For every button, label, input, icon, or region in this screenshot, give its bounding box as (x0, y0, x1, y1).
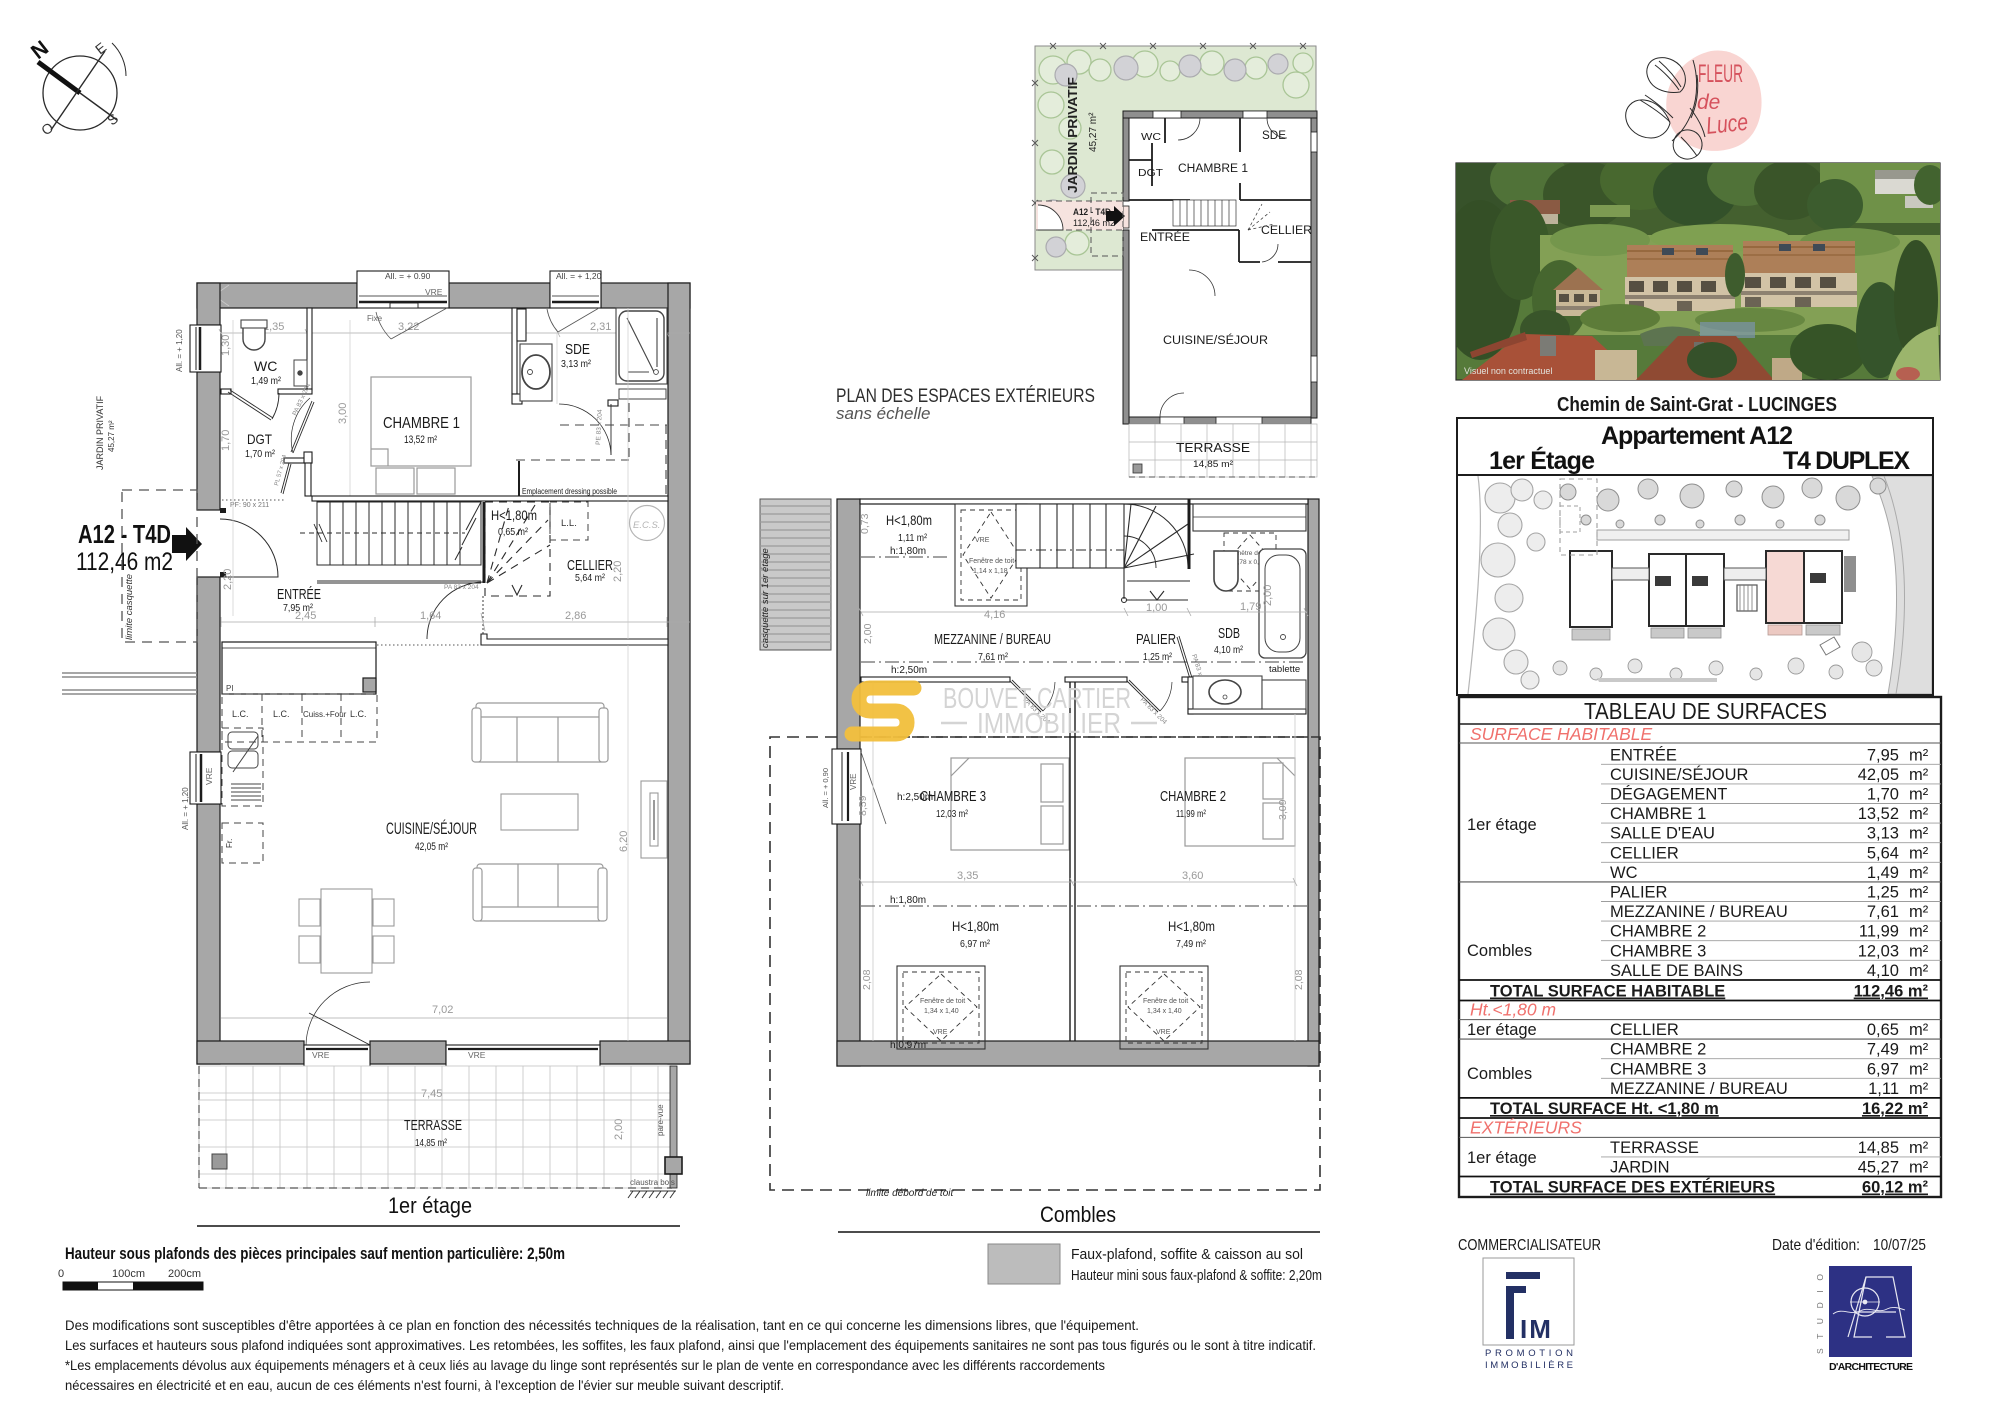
svg-text:1er étage: 1er étage (1467, 816, 1537, 834)
svg-text:42,05 m²: 42,05 m² (415, 841, 448, 853)
svg-text:1er étage: 1er étage (1467, 1149, 1537, 1167)
svg-text:7,45: 7,45 (421, 1088, 442, 1100)
svg-text:ENTRÉE: ENTRÉE (1140, 231, 1190, 244)
svg-text:Visuel non contractuel: Visuel non contractuel (1464, 366, 1552, 376)
svg-text:1,79: 1,79 (1240, 601, 1261, 613)
svg-text:0: 0 (58, 1268, 64, 1280)
svg-text:m²: m² (1909, 746, 1929, 764)
svg-text:All. = + 0,90: All. = + 0,90 (821, 768, 830, 808)
svg-text:7,95: 7,95 (1867, 746, 1899, 764)
svg-text:2,08: 2,08 (1293, 969, 1305, 990)
svg-text:All. = + 1,20: All. = + 1,20 (175, 329, 184, 372)
svg-text:DÉGAGEMENT: DÉGAGEMENT (1610, 785, 1727, 804)
svg-text:Fixe: Fixe (367, 314, 383, 323)
svg-text:DGT: DGT (247, 431, 272, 447)
svg-text:0,65: 0,65 (1867, 1021, 1899, 1039)
svg-text:nécessaires en électricité et: nécessaires en électricité et en eau, au… (65, 1378, 784, 1393)
svg-text:casquette sur 1er étage: casquette sur 1er étage (760, 548, 771, 648)
svg-text:1er étage: 1er étage (1467, 1021, 1537, 1039)
svg-text:m²: m² (1909, 805, 1929, 823)
svg-text:14,85 m²: 14,85 m² (1193, 459, 1233, 470)
svg-text:12,03: 12,03 (1858, 942, 1899, 960)
svg-text:Des modifications sont suscept: Des modifications sont susceptibles d'êt… (65, 1318, 1139, 1333)
svg-text:Chemin de Saint-Grat - LUCINGE: Chemin de Saint-Grat - LUCINGES (1557, 394, 1837, 416)
svg-text:3,13 m²: 3,13 m² (561, 358, 591, 370)
svg-text:TOTAL SURFACE HABITABLE: TOTAL SURFACE HABITABLE (1490, 983, 1725, 1001)
svg-text:Hauteur sous plafonds des pièc: Hauteur sous plafonds des pièces princip… (65, 1245, 565, 1263)
svg-text:Appartement A12: Appartement A12 (1601, 422, 1793, 450)
svg-text:Luce: Luce (1705, 109, 1750, 140)
svg-text:de: de (1697, 91, 1720, 114)
svg-text:42,05: 42,05 (1858, 766, 1899, 784)
svg-text:112,46 m²: 112,46 m² (1854, 983, 1929, 1001)
svg-text:m²: m² (1909, 1159, 1929, 1177)
svg-text:Ht.<1,80 m: Ht.<1,80 m (1470, 1000, 1556, 1020)
svg-text:L.C.: L.C. (350, 709, 367, 719)
svg-text:ENTRÉE: ENTRÉE (277, 586, 321, 603)
svg-text:2,20: 2,20 (612, 561, 624, 582)
svg-text:H<1,80m: H<1,80m (1168, 918, 1215, 934)
svg-text:L.C.: L.C. (232, 709, 249, 719)
svg-text:m²: m² (1909, 1041, 1929, 1059)
svg-text:CUISINE/SÉJOUR: CUISINE/SÉJOUR (1163, 334, 1268, 347)
svg-text:1,49: 1,49 (1867, 864, 1899, 882)
svg-text:PI: PI (226, 684, 234, 693)
svg-text:CHAMBRE 1: CHAMBRE 1 (1610, 805, 1706, 823)
svg-text:5,64 m²: 5,64 m² (575, 572, 605, 584)
svg-text:2,86: 2,86 (565, 610, 586, 622)
svg-text:Combles: Combles (1467, 1065, 1532, 1083)
svg-text:VRE: VRE (1156, 1029, 1171, 1036)
svg-text:H<1,80m: H<1,80m (491, 507, 537, 523)
svg-text:JARDIN PRIVATIF: JARDIN PRIVATIF (1065, 77, 1080, 193)
svg-text:1er Étage: 1er Étage (1489, 446, 1595, 475)
svg-text:m²: m² (1909, 1021, 1929, 1039)
svg-text:Hauteur mini sous faux-plafond: Hauteur mini sous faux-plafond & soffite… (1071, 1267, 1322, 1284)
svg-text:45,27: 45,27 (1858, 1159, 1899, 1177)
svg-text:All. = + 1,20: All. = + 1,20 (181, 787, 190, 830)
svg-text:TERRASSE: TERRASSE (1176, 440, 1250, 455)
svg-text:Combles: Combles (1467, 942, 1532, 960)
svg-text:L.C.: L.C. (273, 709, 290, 719)
svg-text:H<1,80m: H<1,80m (952, 918, 999, 934)
svg-text:Fr.: Fr. (225, 839, 234, 848)
svg-text:1,34 x 1,40: 1,34 x 1,40 (1147, 1008, 1182, 1015)
svg-text:IM: IM (1520, 1314, 1553, 1344)
svg-text:CUISINE/SÉJOUR: CUISINE/SÉJOUR (1610, 765, 1749, 784)
svg-text:Fenêtre de toit: Fenêtre de toit (920, 998, 965, 1005)
svg-text:45,27 m²: 45,27 m² (1088, 112, 1099, 152)
svg-text:CELLIER: CELLIER (1610, 1021, 1679, 1039)
svg-text:limite casquette: limite casquette (124, 574, 135, 640)
svg-text:1,70 m²: 1,70 m² (245, 448, 275, 460)
svg-text:Fenêtre de toit: Fenêtre de toit (1143, 998, 1188, 1005)
svg-text:6,97: 6,97 (1867, 1060, 1899, 1078)
svg-text:112,46 m2: 112,46 m2 (76, 548, 173, 576)
svg-text:SDE: SDE (565, 341, 590, 358)
svg-text:PALIER: PALIER (1136, 631, 1176, 648)
svg-text:2,31: 2,31 (590, 321, 611, 333)
svg-text:Emplacement dressing possible: Emplacement dressing possible (522, 486, 617, 496)
svg-text:SALLE DE BAINS: SALLE DE BAINS (1610, 962, 1743, 980)
svg-text:2,45: 2,45 (295, 610, 316, 622)
svg-text:EXTÉRIEURS: EXTÉRIEURS (1470, 1118, 1582, 1138)
svg-text:2,20: 2,20 (222, 569, 234, 590)
svg-text:1,11: 1,11 (1868, 1080, 1899, 1098)
svg-text:All. = + 1,20: All. = + 1,20 (556, 271, 602, 281)
svg-text:7,61 m²: 7,61 m² (978, 651, 1008, 663)
svg-text:CHAMBRE 3: CHAMBRE 3 (1610, 942, 1706, 960)
svg-text:sans échelle: sans échelle (836, 404, 931, 423)
svg-text:m²: m² (1909, 1080, 1929, 1098)
svg-text:2,00: 2,00 (1262, 585, 1274, 606)
svg-text:200cm: 200cm (168, 1268, 201, 1280)
svg-text:SURFACE HABITABLE: SURFACE HABITABLE (1470, 724, 1652, 744)
svg-text:TOTAL SURFACE DES EXTÉRIEURS: TOTAL SURFACE DES EXTÉRIEURS (1490, 1178, 1775, 1197)
svg-text:VRE: VRE (849, 774, 858, 790)
svg-text:1,70: 1,70 (1867, 786, 1899, 804)
svg-text:TERRASSE: TERRASSE (404, 1117, 462, 1134)
svg-text:Fenêtre de toit: Fenêtre de toit (969, 558, 1014, 565)
svg-text:m²: m² (1909, 884, 1929, 902)
svg-text:CELLIER: CELLIER (1610, 844, 1679, 862)
svg-text:m²: m² (1909, 923, 1929, 941)
svg-text:1er étage: 1er étage (388, 1193, 472, 1218)
svg-text:h:2,50m: h:2,50m (891, 665, 927, 676)
svg-text:limite débord de toit: limite débord de toit (866, 1188, 954, 1199)
svg-text:TERRASSE: TERRASSE (1610, 1139, 1699, 1157)
svg-text:VRE: VRE (933, 1029, 948, 1036)
svg-text:ENTRÉE: ENTRÉE (1610, 745, 1677, 764)
svg-text:1,34 x 1,40: 1,34 x 1,40 (924, 1008, 959, 1015)
svg-text:PF: 90 x 211: PF: 90 x 211 (230, 502, 269, 509)
svg-text:tablette: tablette (1269, 664, 1300, 675)
svg-text:VRE: VRE (468, 1050, 486, 1060)
svg-text:14,85 m²: 14,85 m² (415, 1137, 447, 1149)
svg-text:VRE: VRE (425, 287, 443, 297)
svg-text:8,59: 8,59 (857, 795, 869, 816)
svg-text:E.C.S.: E.C.S. (633, 520, 660, 531)
svg-text:CHAMBRE 2: CHAMBRE 2 (1160, 788, 1226, 805)
svg-text:H<1,80m: H<1,80m (886, 512, 932, 528)
svg-text:*Les emplacements dévolus aux: *Les emplacements dévolus aux équipement… (65, 1358, 1105, 1373)
svg-text:JARDIN: JARDIN (1610, 1159, 1670, 1177)
svg-text:SDB: SDB (1218, 625, 1240, 642)
svg-text:CHAMBRE 3: CHAMBRE 3 (920, 788, 986, 805)
svg-text:3,35: 3,35 (957, 870, 978, 882)
svg-text:Cuiss.+Four: Cuiss.+Four (303, 710, 347, 719)
svg-text:1,25 m²: 1,25 m² (1143, 651, 1172, 663)
svg-text:2,00: 2,00 (613, 1119, 625, 1140)
svg-text:A12 - T4D: A12 - T4D (78, 519, 171, 549)
svg-text:4,10: 4,10 (1867, 962, 1899, 980)
svg-text:3,13: 3,13 (1867, 825, 1899, 843)
svg-text:D'ARCHITECTURE: D'ARCHITECTURE (1829, 1361, 1913, 1373)
svg-text:Combles: Combles (1040, 1202, 1116, 1227)
svg-text:m²: m² (1909, 962, 1929, 980)
svg-text:IMMOBILIER: IMMOBILIER (977, 708, 1121, 740)
svg-text:2,08: 2,08 (861, 969, 873, 990)
svg-text:3,09: 3,09 (1277, 799, 1289, 820)
svg-text:h:1,80m: h:1,80m (890, 546, 926, 557)
svg-text:JARDIN PRIVATIF: JARDIN PRIVATIF (95, 395, 105, 470)
svg-text:m²: m² (1909, 786, 1929, 804)
svg-text:T4 DUPLEX: T4 DUPLEX (1783, 447, 1910, 475)
svg-text:WC: WC (1141, 131, 1161, 143)
svg-text:7,49: 7,49 (1867, 1041, 1899, 1059)
svg-text:h:1,80m: h:1,80m (890, 895, 926, 906)
svg-text:100cm: 100cm (112, 1268, 145, 1280)
svg-text:CHAMBRE 1: CHAMBRE 1 (383, 415, 460, 432)
svg-text:L.L.: L.L. (561, 518, 577, 529)
svg-text:4,16: 4,16 (984, 609, 1005, 621)
svg-text:WC: WC (1610, 864, 1638, 882)
svg-text:3,00: 3,00 (337, 403, 349, 424)
svg-text:WC: WC (254, 358, 277, 374)
svg-text:1,70: 1,70 (220, 430, 232, 451)
svg-text:DGT: DGT (1138, 167, 1164, 179)
svg-text:PALIER: PALIER (1610, 884, 1668, 902)
svg-text:m²: m² (1909, 766, 1929, 784)
svg-text:45,27 m²: 45,27 m² (107, 420, 116, 452)
svg-text:Faux-plafond, soffite & caisso: Faux-plafond, soffite & caisson au sol (1071, 1246, 1303, 1263)
svg-text:60,12 m²: 60,12 m² (1862, 1179, 1929, 1197)
svg-text:Date d'édition:: Date d'édition: (1772, 1237, 1860, 1254)
svg-text:Les surfaces et hauteurs sous: Les surfaces et hauteurs sous plafond in… (65, 1338, 1316, 1353)
svg-text:h:0,97m: h:0,97m (890, 1040, 926, 1051)
svg-text:m²: m² (1909, 942, 1929, 960)
svg-text:TOTAL SURFACE Ht. <1,80 m: TOTAL SURFACE Ht. <1,80 m (1490, 1100, 1719, 1118)
svg-text:m²: m² (1909, 903, 1929, 921)
svg-text:0,65 m²: 0,65 m² (498, 526, 528, 538)
svg-text:m²: m² (1909, 1060, 1929, 1078)
svg-text:13,52 m²: 13,52 m² (404, 434, 437, 446)
svg-text:0,73: 0,73 (859, 513, 871, 534)
svg-text:PROMOTION: PROMOTION (1485, 1348, 1573, 1359)
svg-text:CHAMBRE 3: CHAMBRE 3 (1610, 1060, 1706, 1078)
svg-text:1,64: 1,64 (420, 610, 441, 622)
svg-text:VRE: VRE (975, 537, 990, 544)
svg-text:FLEUR: FLEUR (1698, 60, 1743, 88)
svg-text:PA 83 x 204: PA 83 x 204 (444, 584, 479, 591)
svg-text:5,64: 5,64 (1867, 844, 1899, 862)
svg-text:14,85: 14,85 (1858, 1139, 1899, 1157)
svg-text:m²: m² (1909, 825, 1929, 843)
svg-text:MEZZANINE / BUREAU: MEZZANINE / BUREAU (1610, 1080, 1788, 1098)
svg-text:A12 - T4D: A12 - T4D (1073, 207, 1111, 218)
svg-text:CHAMBRE 2: CHAMBRE 2 (1610, 1041, 1706, 1059)
svg-text:MEZZANINE / BUREAU: MEZZANINE / BUREAU (934, 631, 1051, 648)
svg-text:1,00: 1,00 (1146, 602, 1167, 614)
svg-text:6,97 m²: 6,97 m² (960, 938, 990, 950)
svg-text:CHAMBRE 2: CHAMBRE 2 (1610, 923, 1706, 941)
svg-text:m²: m² (1909, 1139, 1929, 1157)
svg-text:claustra bois: claustra bois (630, 1178, 675, 1187)
svg-text:7,02: 7,02 (432, 1004, 453, 1016)
svg-text:TABLEAU DE SURFACES: TABLEAU DE SURFACES (1584, 698, 1827, 724)
svg-text:SDE: SDE (1262, 130, 1286, 142)
svg-text:COMMERCIALISATEUR: COMMERCIALISATEUR (1458, 1237, 1601, 1254)
svg-text:1,11 m²: 1,11 m² (898, 532, 927, 544)
svg-text:4,10 m²: 4,10 m² (1214, 644, 1243, 656)
svg-text:3,60: 3,60 (1182, 870, 1203, 882)
svg-text:10/07/25: 10/07/25 (1873, 1237, 1926, 1254)
svg-text:MEZZANINE / BUREAU: MEZZANINE / BUREAU (1610, 903, 1788, 921)
svg-text:All. = + 0.90: All. = + 0.90 (385, 271, 431, 281)
svg-text:1,30: 1,30 (220, 335, 232, 356)
svg-text:16,22 m²: 16,22 m² (1862, 1100, 1929, 1118)
svg-text:pare-vue: pare-vue (656, 1104, 665, 1136)
svg-text:m²: m² (1909, 844, 1929, 862)
svg-text:12,03 m²: 12,03 m² (936, 808, 968, 820)
svg-text:3,22: 3,22 (398, 321, 419, 333)
svg-text:7,49 m²: 7,49 m² (1176, 938, 1206, 950)
svg-text:CELLIER: CELLIER (1261, 225, 1312, 237)
svg-text:CUISINE/SÉJOUR: CUISINE/SÉJOUR (386, 819, 477, 838)
svg-text:2,00: 2,00 (862, 623, 874, 644)
svg-text:m²: m² (1909, 864, 1929, 882)
svg-text:11,99: 11,99 (1859, 923, 1899, 941)
svg-text:VRE: VRE (312, 1050, 330, 1060)
svg-text:1,25: 1,25 (1867, 884, 1899, 902)
svg-text:7,61: 7,61 (1867, 903, 1899, 921)
svg-text:VRE: VRE (204, 767, 214, 785)
svg-text:13,52: 13,52 (1858, 805, 1899, 823)
svg-text:1,14 x 1,18: 1,14 x 1,18 (973, 568, 1008, 575)
svg-text:11,99 m²: 11,99 m² (1176, 808, 1206, 820)
svg-text:SALLE D'EAU: SALLE D'EAU (1610, 825, 1715, 843)
svg-text:CHAMBRE 1: CHAMBRE 1 (1178, 163, 1248, 175)
svg-text:1,49 m²: 1,49 m² (251, 375, 281, 387)
